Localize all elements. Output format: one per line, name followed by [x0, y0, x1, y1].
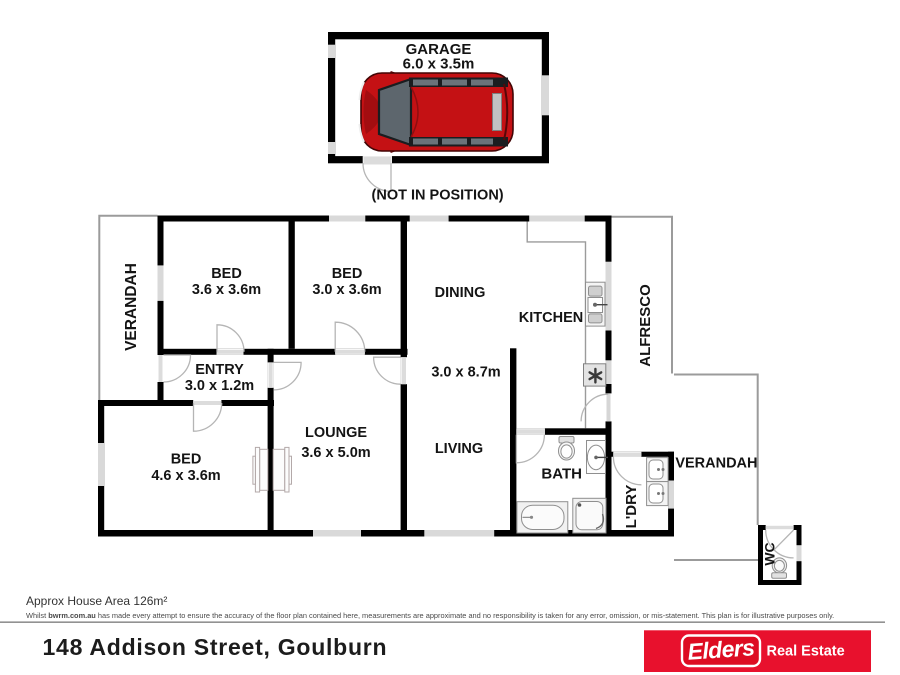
svg-text:BED: BED: [171, 452, 202, 468]
svg-text:LIVING: LIVING: [435, 441, 483, 457]
svg-text:6.0 x 3.5m: 6.0 x 3.5m: [403, 56, 475, 73]
svg-text:ENTRY: ENTRY: [195, 362, 244, 378]
svg-text:BED: BED: [211, 266, 242, 282]
svg-text:LOUNGE: LOUNGE: [305, 425, 367, 441]
svg-text:Elders: Elders: [687, 634, 755, 665]
svg-text:KITCHEN: KITCHEN: [519, 310, 583, 326]
svg-text:(NOT IN POSITION): (NOT IN POSITION): [372, 188, 504, 204]
svg-text:3.0 x 3.6m: 3.0 x 3.6m: [312, 282, 381, 298]
svg-text:DINING: DINING: [435, 285, 486, 301]
svg-text:ALFRESCO: ALFRESCO: [637, 284, 654, 367]
svg-text:BATH: BATH: [541, 466, 582, 483]
svg-text:Approx House Area 126m²: Approx House Area 126m²: [26, 594, 167, 608]
svg-text:WC: WC: [762, 542, 778, 565]
svg-text:3.0 x 8.7m: 3.0 x 8.7m: [431, 365, 500, 381]
svg-text:Real Estate: Real Estate: [767, 644, 845, 660]
svg-text:3.6 x 3.6m: 3.6 x 3.6m: [192, 282, 261, 298]
svg-text:Whilst bwrm.com.au has made ev: Whilst bwrm.com.au has made every attemp…: [26, 611, 834, 620]
svg-text:3.0 x 1.2m: 3.0 x 1.2m: [185, 378, 254, 394]
svg-text:BED: BED: [332, 266, 363, 282]
svg-text:VERANDAH: VERANDAH: [123, 263, 140, 351]
svg-text:VERANDAH: VERANDAH: [675, 456, 757, 472]
svg-text:3.6 x 5.0m: 3.6 x 5.0m: [301, 445, 370, 461]
svg-text:L'DRY: L'DRY: [623, 485, 640, 529]
svg-text:4.6 x 3.6m: 4.6 x 3.6m: [151, 468, 220, 484]
svg-text:148 Addison Street, Goulburn: 148 Addison Street, Goulburn: [43, 634, 388, 660]
